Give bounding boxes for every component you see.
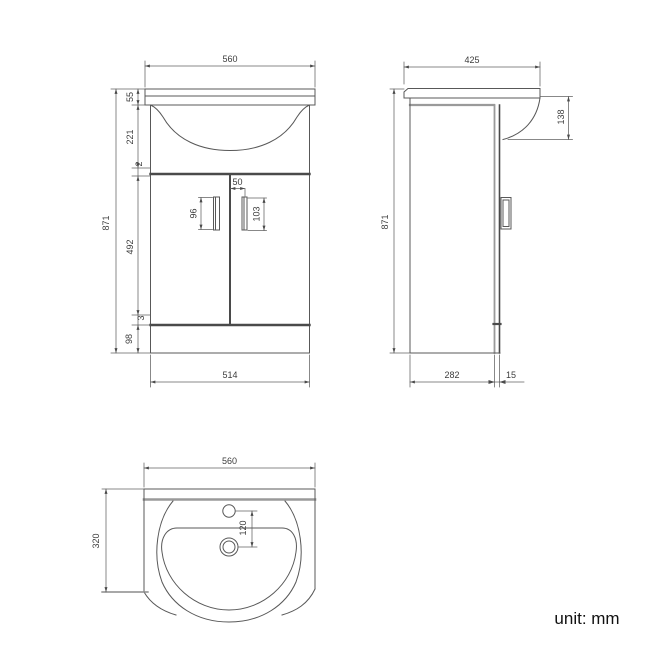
dim-label-plan-tap-to-drain: 120: [238, 520, 248, 535]
unit-label: unit: mm: [554, 609, 619, 628]
dim-label-plan-overall-depth: 320: [91, 533, 101, 548]
dim-label-front-top-gap: 2: [134, 161, 144, 166]
dim-label-front-cabinet-width: 514: [222, 370, 237, 380]
dim-label-front-rim-height: 55: [125, 92, 135, 102]
side-outline: [404, 89, 540, 354]
dim-label-front-handle-offset: 50: [232, 177, 242, 187]
front-dimensions: 560 871 55 221 2 492 3 98: [101, 54, 315, 387]
dim-label-front-plinth-height: 98: [124, 334, 134, 344]
dim-label-side-door-thickness: 15: [506, 370, 516, 380]
dim-label-side-overall-height: 871: [380, 214, 390, 229]
tap-hole: [223, 505, 235, 517]
dim-label-front-overall-width: 560: [222, 54, 237, 64]
side-handle: [501, 198, 511, 230]
dim-label-front-basin-height: 221: [125, 129, 135, 144]
dim-label-plan-overall-width: 560: [222, 456, 237, 466]
plan-view: 560 320 120: [91, 456, 315, 622]
front-view: 560 871 55 221 2 492 3 98: [101, 54, 315, 387]
dim-label-front-door-height: 492: [125, 239, 135, 254]
technical-drawing-canvas: 560 871 55 221 2 492 3 98: [0, 0, 650, 650]
front-left-handle: [214, 197, 220, 230]
side-view: 425 138 871 282 15: [380, 55, 573, 387]
front-right-handle: [242, 197, 247, 230]
front-outline: [145, 89, 315, 353]
dim-label-side-cabinet-depth: 282: [444, 370, 459, 380]
vanity-dimension-drawing: 560 871 55 221 2 492 3 98: [0, 0, 650, 650]
dim-label-front-overall-height: 871: [101, 215, 111, 230]
dim-label-front-left-handle: 96: [189, 208, 199, 218]
plan-outline: [144, 489, 315, 622]
plan-dimensions: 560 320 120: [91, 456, 315, 592]
dim-label-side-basin-overhang: 138: [556, 109, 566, 124]
dim-label-side-overall-depth: 425: [464, 55, 479, 65]
dim-label-front-right-handle: 103: [252, 206, 262, 221]
drain-hole-inner: [223, 541, 235, 553]
dim-label-front-bottom-gap: 3: [136, 315, 146, 320]
